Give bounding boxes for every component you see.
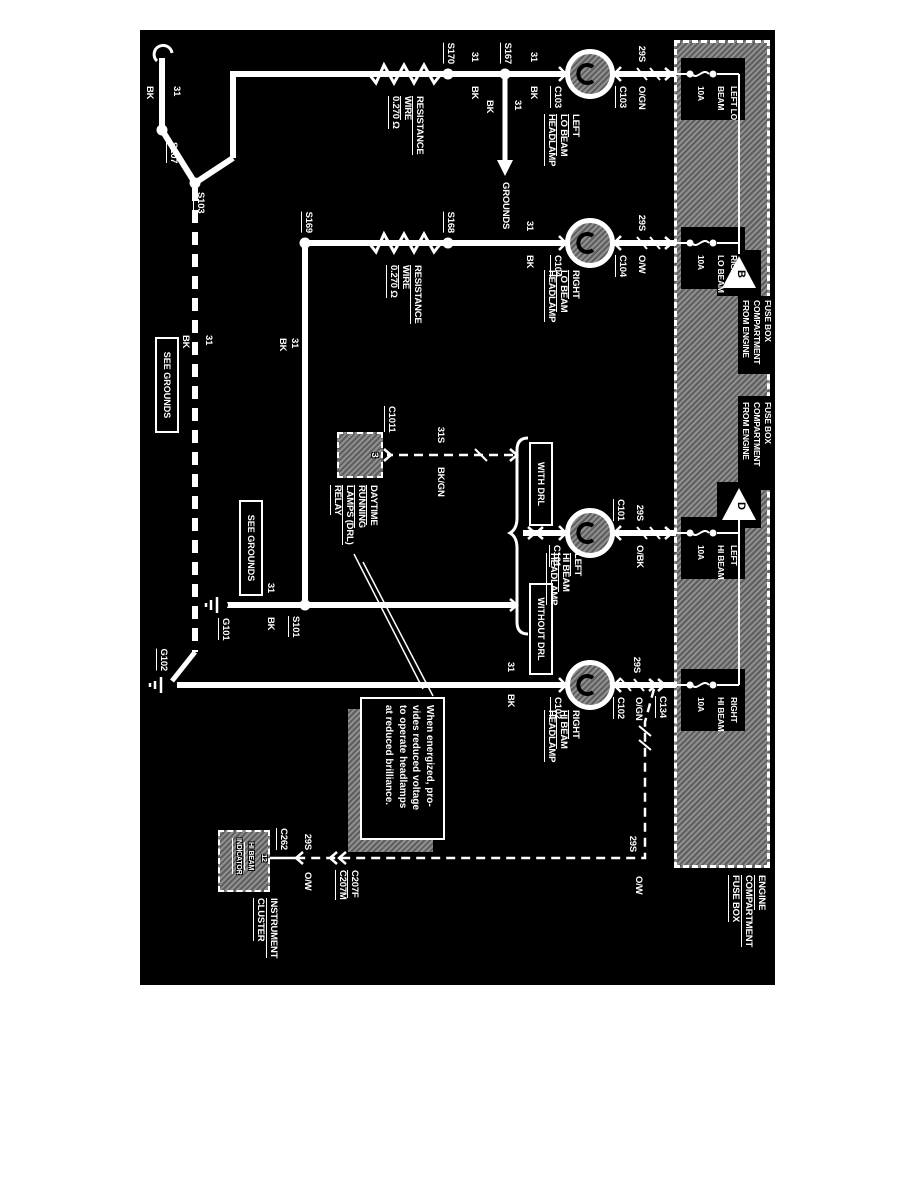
from-fusebox-label: FROM ENGINE bbox=[741, 300, 751, 358]
from-fusebox-label: FROM ENGINE bbox=[741, 402, 751, 460]
wire-circuit-label: 29S bbox=[627, 836, 638, 852]
offpage-triangle-letter-d: D bbox=[735, 502, 746, 510]
wire-circuit-label: 31 bbox=[265, 583, 276, 593]
wire-color-label: O/W bbox=[633, 876, 644, 894]
lamp-name: LEFT bbox=[569, 114, 582, 137]
wire-circuit-label: 31 bbox=[171, 86, 182, 96]
grounds-arrow-label: GROUNDS bbox=[500, 182, 511, 229]
relay-name: RUNNING bbox=[355, 485, 368, 528]
connector-label-c207f: C207F bbox=[348, 870, 361, 898]
lamp-name: LO BEAM bbox=[557, 114, 570, 156]
splice-label-s168: S168 bbox=[444, 212, 457, 233]
note-line: at reduced brilliance. bbox=[382, 705, 396, 832]
fusebox-title: ENGINE bbox=[755, 875, 768, 910]
wire-color-label: BK bbox=[469, 86, 480, 99]
headlamp-symbol-right-lo bbox=[565, 218, 615, 268]
from-fusebox-label: COMPARTMENT bbox=[752, 402, 762, 466]
cluster-pin-number: 12 bbox=[259, 848, 268, 868]
note-line: vides reduced voltage bbox=[409, 705, 423, 832]
wiring-diagram-board: WITH DRL WITHOUT DRL SEE GROUNDS SEE GRO… bbox=[140, 30, 775, 985]
lamp-name: RIGHT bbox=[569, 710, 582, 739]
wire-color-label: BK bbox=[180, 335, 191, 348]
relay-name: LAMPS (DRL) bbox=[343, 485, 356, 545]
from-fusebox-label: COMPARTMENT bbox=[752, 300, 762, 364]
headlamp-symbol-left-hi bbox=[565, 508, 615, 558]
wire-circuit-label: 31 bbox=[512, 100, 523, 110]
lamp-name: LEFT bbox=[571, 553, 584, 576]
hi-beam-indicator-label: HI BEAM bbox=[245, 842, 256, 870]
lamp-name: RIGHT bbox=[569, 270, 582, 299]
wire-color-label: BK bbox=[265, 617, 276, 630]
wire-color-label: O/W bbox=[636, 255, 647, 273]
wire-color-label: O/BK bbox=[634, 545, 645, 568]
resistance-wire-label: WIRE bbox=[401, 96, 414, 120]
splice-label-s170: S170 bbox=[444, 43, 457, 64]
wire-color-label: BK bbox=[144, 86, 155, 99]
connector-label-c102: C102 bbox=[614, 697, 627, 719]
resistance-wire-symbols bbox=[369, 65, 441, 252]
relay-name: DAYTIME bbox=[367, 485, 380, 525]
see-grounds-label: SEE GROUNDS bbox=[162, 352, 172, 419]
wire-circuit-label: 31 bbox=[203, 335, 214, 345]
note-line: When energized, pro- bbox=[423, 705, 437, 832]
fuse-elements bbox=[692, 72, 709, 687]
wire-color-label: BK bbox=[505, 694, 516, 707]
note-box: When energized, pro- vides reduced volta… bbox=[360, 697, 445, 840]
see-grounds-box-1: SEE GROUNDS bbox=[155, 337, 179, 433]
lamp-name: HI BEAM bbox=[557, 710, 570, 749]
resistance-wire-label: 0.270 Ω bbox=[387, 265, 400, 298]
connector-label-c103: C103 bbox=[551, 86, 564, 108]
wire-circuit-label: 31 bbox=[528, 52, 539, 62]
arrowhead-icon bbox=[497, 160, 513, 176]
splice-label-s169: S169 bbox=[302, 212, 315, 233]
wire-circuit-label: 29S bbox=[302, 834, 313, 850]
headlamp-symbol-left-lo bbox=[565, 49, 615, 99]
fuse-rating: 10A bbox=[696, 697, 706, 712]
lamp-name: HEADLAMP bbox=[547, 553, 560, 605]
lamp-name: HEADLAMP bbox=[545, 710, 558, 762]
fusebox-title: COMPARTMENT bbox=[742, 875, 755, 947]
wire-color-label: BK bbox=[484, 100, 495, 113]
connector-label-c104: C104 bbox=[616, 255, 629, 277]
wire-circuit-label: 29S bbox=[631, 657, 642, 673]
splice-label-s103: S103 bbox=[194, 192, 207, 213]
splice-label-s107: S107 bbox=[167, 142, 180, 163]
relay-name: RELAY bbox=[331, 485, 344, 515]
fuse-dots bbox=[687, 71, 717, 689]
lamp-name: HEADLAMP bbox=[545, 270, 558, 322]
resistance-wire-label: RESISTANCE bbox=[413, 96, 426, 155]
grounds-arrow bbox=[497, 74, 513, 176]
instrument-cluster-label: INSTRUMENT bbox=[267, 898, 280, 958]
lamp-name: HI BEAM bbox=[559, 553, 572, 592]
offpage-triangle-icons bbox=[722, 256, 756, 520]
wire-circuit-label: 31 bbox=[289, 338, 300, 348]
fuse-label: RIGHT bbox=[729, 697, 739, 722]
offpage-triangle-letter-b: B bbox=[735, 270, 746, 278]
fuse-bus-lines bbox=[674, 74, 739, 685]
wire-circuit-label: 31 bbox=[505, 662, 516, 672]
fusebox-title: FUSE BOX bbox=[729, 875, 742, 922]
ground-label-g101: G101 bbox=[219, 618, 232, 640]
connector-label-c207m: C207M bbox=[336, 870, 349, 900]
note-callout-lines bbox=[354, 554, 433, 696]
wire-color-label: O/GN bbox=[633, 697, 644, 720]
wire-color-label: BK bbox=[277, 338, 288, 351]
wire-circuit-label: 29S bbox=[634, 505, 645, 521]
resistance-wire-label: WIRE bbox=[399, 265, 412, 289]
ground-symbol-g101 bbox=[206, 597, 228, 613]
with-drl-label: WITH DRL bbox=[536, 462, 546, 506]
fuse-label: LEFT LO bbox=[729, 86, 739, 120]
scanned-page: WITH DRL WITHOUT DRL SEE GROUNDS SEE GRO… bbox=[0, 0, 918, 1188]
wire-circuit-label: 31 bbox=[469, 52, 480, 62]
connector-label-c262: C262 bbox=[277, 828, 290, 850]
fuse-rating: 10A bbox=[696, 86, 706, 101]
see-grounds-label: SEE GROUNDS bbox=[246, 515, 256, 582]
fuse-label: LEFT bbox=[729, 545, 739, 565]
relay-pin-number: 3 bbox=[369, 446, 380, 464]
note-line: to operate headlamps bbox=[396, 705, 410, 832]
splice-label-s167: S167 bbox=[501, 43, 514, 64]
headlamp-symbol-right-hi bbox=[565, 660, 615, 710]
connector-label-c103: C103 bbox=[616, 86, 629, 108]
wire-circuit-label: 29S bbox=[636, 46, 647, 62]
fuse-label: BEAM bbox=[716, 86, 726, 110]
connector-label-c134: C134 bbox=[656, 696, 669, 718]
wire-circuit-label: 31S bbox=[435, 427, 446, 443]
wire-circuit-label: 31 bbox=[524, 221, 535, 231]
without-drl-label: WITHOUT DRL bbox=[536, 598, 546, 661]
ground-symbol-g102 bbox=[150, 677, 172, 693]
fuse-label: HI BEAM bbox=[716, 697, 726, 732]
fuse-rating: 10A bbox=[696, 545, 706, 560]
fuse-label: LO BEAM bbox=[716, 255, 726, 293]
fuse-label: HI BEAM bbox=[716, 545, 726, 580]
wire-circuit-label: 29S bbox=[636, 215, 647, 231]
hi-beam-indicator-label: INDICATOR bbox=[233, 838, 244, 874]
from-fusebox-label: FUSE BOX bbox=[763, 300, 773, 342]
wire-color-label: O/W bbox=[302, 872, 313, 890]
lamp-name: HEADLAMP bbox=[545, 114, 558, 166]
resistance-wire-label: 0.270 Ω bbox=[389, 96, 402, 129]
wire-color-label: O/GN bbox=[636, 86, 647, 109]
see-grounds-box-2: SEE GROUNDS bbox=[239, 500, 263, 596]
resistance-wire-label: RESISTANCE bbox=[411, 265, 424, 324]
lamp-name: LO BEAM bbox=[557, 270, 570, 312]
with-drl-box: WITH DRL bbox=[529, 442, 553, 526]
splice-label-s101: S101 bbox=[289, 616, 302, 637]
wire-color-label: BK bbox=[528, 86, 539, 99]
connector-label-c101: C101 bbox=[614, 499, 627, 521]
wire-color-label: BK/GN bbox=[435, 467, 446, 497]
from-fusebox-label: FUSE BOX bbox=[763, 402, 773, 444]
instrument-cluster-label: CLUSTER bbox=[254, 898, 267, 941]
ground-label-g102: G102 bbox=[157, 649, 170, 671]
fuse-rating: 10A bbox=[696, 255, 706, 270]
connector-label-c1011: C1011 bbox=[385, 406, 398, 432]
wire-color-label: BK bbox=[524, 255, 535, 268]
